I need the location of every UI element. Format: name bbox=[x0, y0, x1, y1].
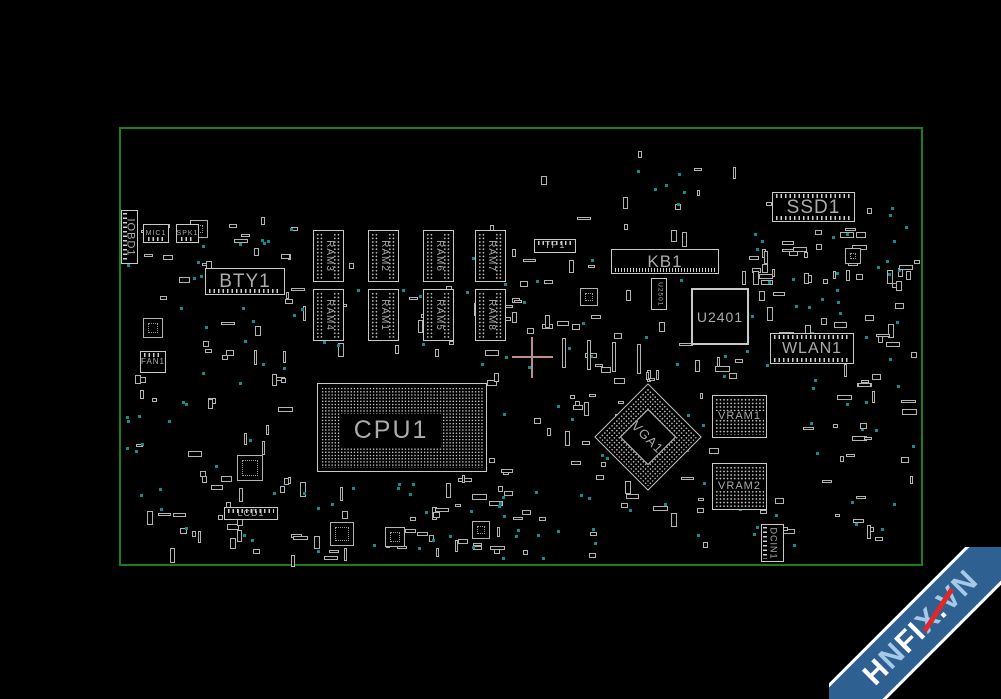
pin-grid bbox=[715, 419, 764, 435]
component-u2401: U2401 bbox=[691, 288, 749, 345]
component-label: U2401 bbox=[697, 310, 743, 324]
component-label: WLAN1 bbox=[782, 341, 842, 357]
component-label: RAM1 bbox=[379, 299, 389, 331]
component-label: VGA1 bbox=[630, 419, 667, 456]
component-label: MIC1 bbox=[146, 230, 167, 237]
component-ram2: RAM2 bbox=[368, 230, 399, 282]
pin-row bbox=[209, 289, 281, 293]
component-label: SPK1 bbox=[177, 230, 199, 237]
component-ssd1: SSD1 bbox=[772, 192, 855, 222]
component-ram5: RAM5 bbox=[423, 289, 454, 341]
component-label: FAN1 bbox=[141, 358, 165, 366]
component-label: RAM3 bbox=[324, 240, 334, 272]
pin-row bbox=[144, 353, 162, 357]
component-u2501: U2501 bbox=[651, 278, 667, 310]
component-vram2: VRAM2 bbox=[712, 463, 767, 510]
watermark-banner: HNFIX.VN bbox=[829, 547, 1001, 699]
pin-grid bbox=[371, 292, 379, 338]
component-label: RAM7 bbox=[486, 240, 496, 272]
component-cpu1: CPU1 bbox=[317, 383, 487, 472]
component-dcin1: DCIN1 bbox=[761, 524, 784, 562]
component-ram3: RAM3 bbox=[313, 230, 344, 282]
component-spk1: SPK1 bbox=[176, 224, 199, 243]
origin-crosshair-vertical bbox=[531, 337, 533, 378]
component-label: RAM8 bbox=[486, 299, 496, 331]
component-ram6: RAM6 bbox=[423, 230, 454, 282]
watermark-band: HNFIX.VN bbox=[829, 547, 1001, 699]
component-label: SSD1 bbox=[787, 198, 841, 217]
pin-grid bbox=[715, 398, 764, 411]
pin-grid bbox=[715, 490, 764, 507]
component-lcd1: LCD1 bbox=[224, 507, 278, 520]
component-mic1: MIC1 bbox=[143, 224, 169, 243]
pin-row bbox=[774, 335, 850, 339]
component-label: RAM2 bbox=[379, 240, 389, 272]
pin-grid bbox=[316, 233, 324, 279]
boardview-screenshot: IOBD1MIC1SPK1BTY1RAM3RAM2RAM6RAM7RAM4RAM… bbox=[0, 0, 1001, 699]
component-fan1: FAN1 bbox=[140, 351, 166, 373]
pin-column bbox=[763, 527, 767, 559]
pin-grid bbox=[426, 292, 434, 338]
pin-row bbox=[538, 241, 572, 245]
pin-grid bbox=[371, 233, 379, 279]
watermark-text: HNFIX.VN bbox=[857, 564, 986, 693]
pin-grid bbox=[426, 233, 434, 279]
pin-row bbox=[776, 194, 851, 198]
pin-row bbox=[228, 509, 274, 513]
pin-row bbox=[615, 268, 715, 272]
pin-grid bbox=[715, 466, 764, 480]
pin-row bbox=[181, 237, 194, 241]
component-vram1: VRAM1 bbox=[712, 395, 767, 438]
component-iobd1: IOBD1 bbox=[121, 210, 138, 264]
component-tp1: TP1 bbox=[534, 239, 576, 253]
component-label: DCIN1 bbox=[768, 527, 777, 559]
component-vga1: VGA1 bbox=[594, 383, 701, 490]
bga-center-area: CPU1 bbox=[341, 414, 442, 448]
pin-grid bbox=[478, 233, 486, 279]
component-label: CPU1 bbox=[354, 418, 429, 443]
component-label: RAM5 bbox=[434, 299, 444, 331]
pin-row bbox=[774, 358, 850, 362]
pin-row bbox=[148, 237, 164, 241]
component-ram7: RAM7 bbox=[475, 230, 506, 282]
component-ram4: RAM4 bbox=[313, 289, 344, 341]
component-ram8: RAM8 bbox=[475, 289, 506, 341]
component-label: IOBD1 bbox=[124, 218, 135, 256]
pin-grid bbox=[478, 292, 486, 338]
pin-grid bbox=[316, 292, 324, 338]
component-kb1: KB1 bbox=[611, 249, 719, 274]
pin-row bbox=[776, 216, 851, 220]
component-label: RAM6 bbox=[434, 240, 444, 272]
component-label: RAM4 bbox=[324, 299, 334, 331]
component-wlan1: WLAN1 bbox=[770, 333, 854, 364]
component-ram1: RAM1 bbox=[368, 289, 399, 341]
component-label: U2501 bbox=[656, 282, 663, 306]
component-bty1: BTY1 bbox=[205, 268, 285, 295]
